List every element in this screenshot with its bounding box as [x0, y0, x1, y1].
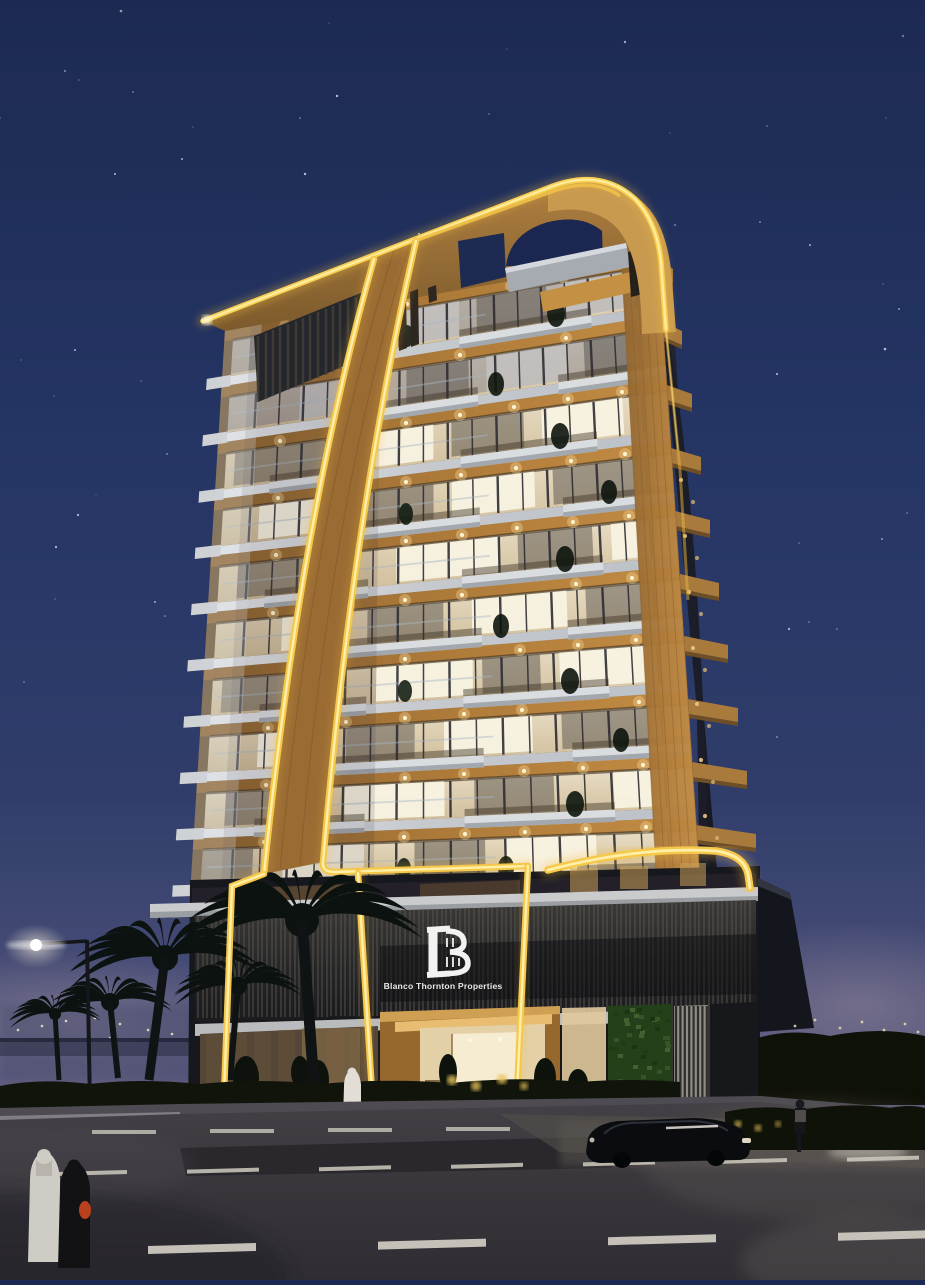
svg-text:Blanco Thornton Properties: Blanco Thornton Properties: [384, 981, 503, 991]
